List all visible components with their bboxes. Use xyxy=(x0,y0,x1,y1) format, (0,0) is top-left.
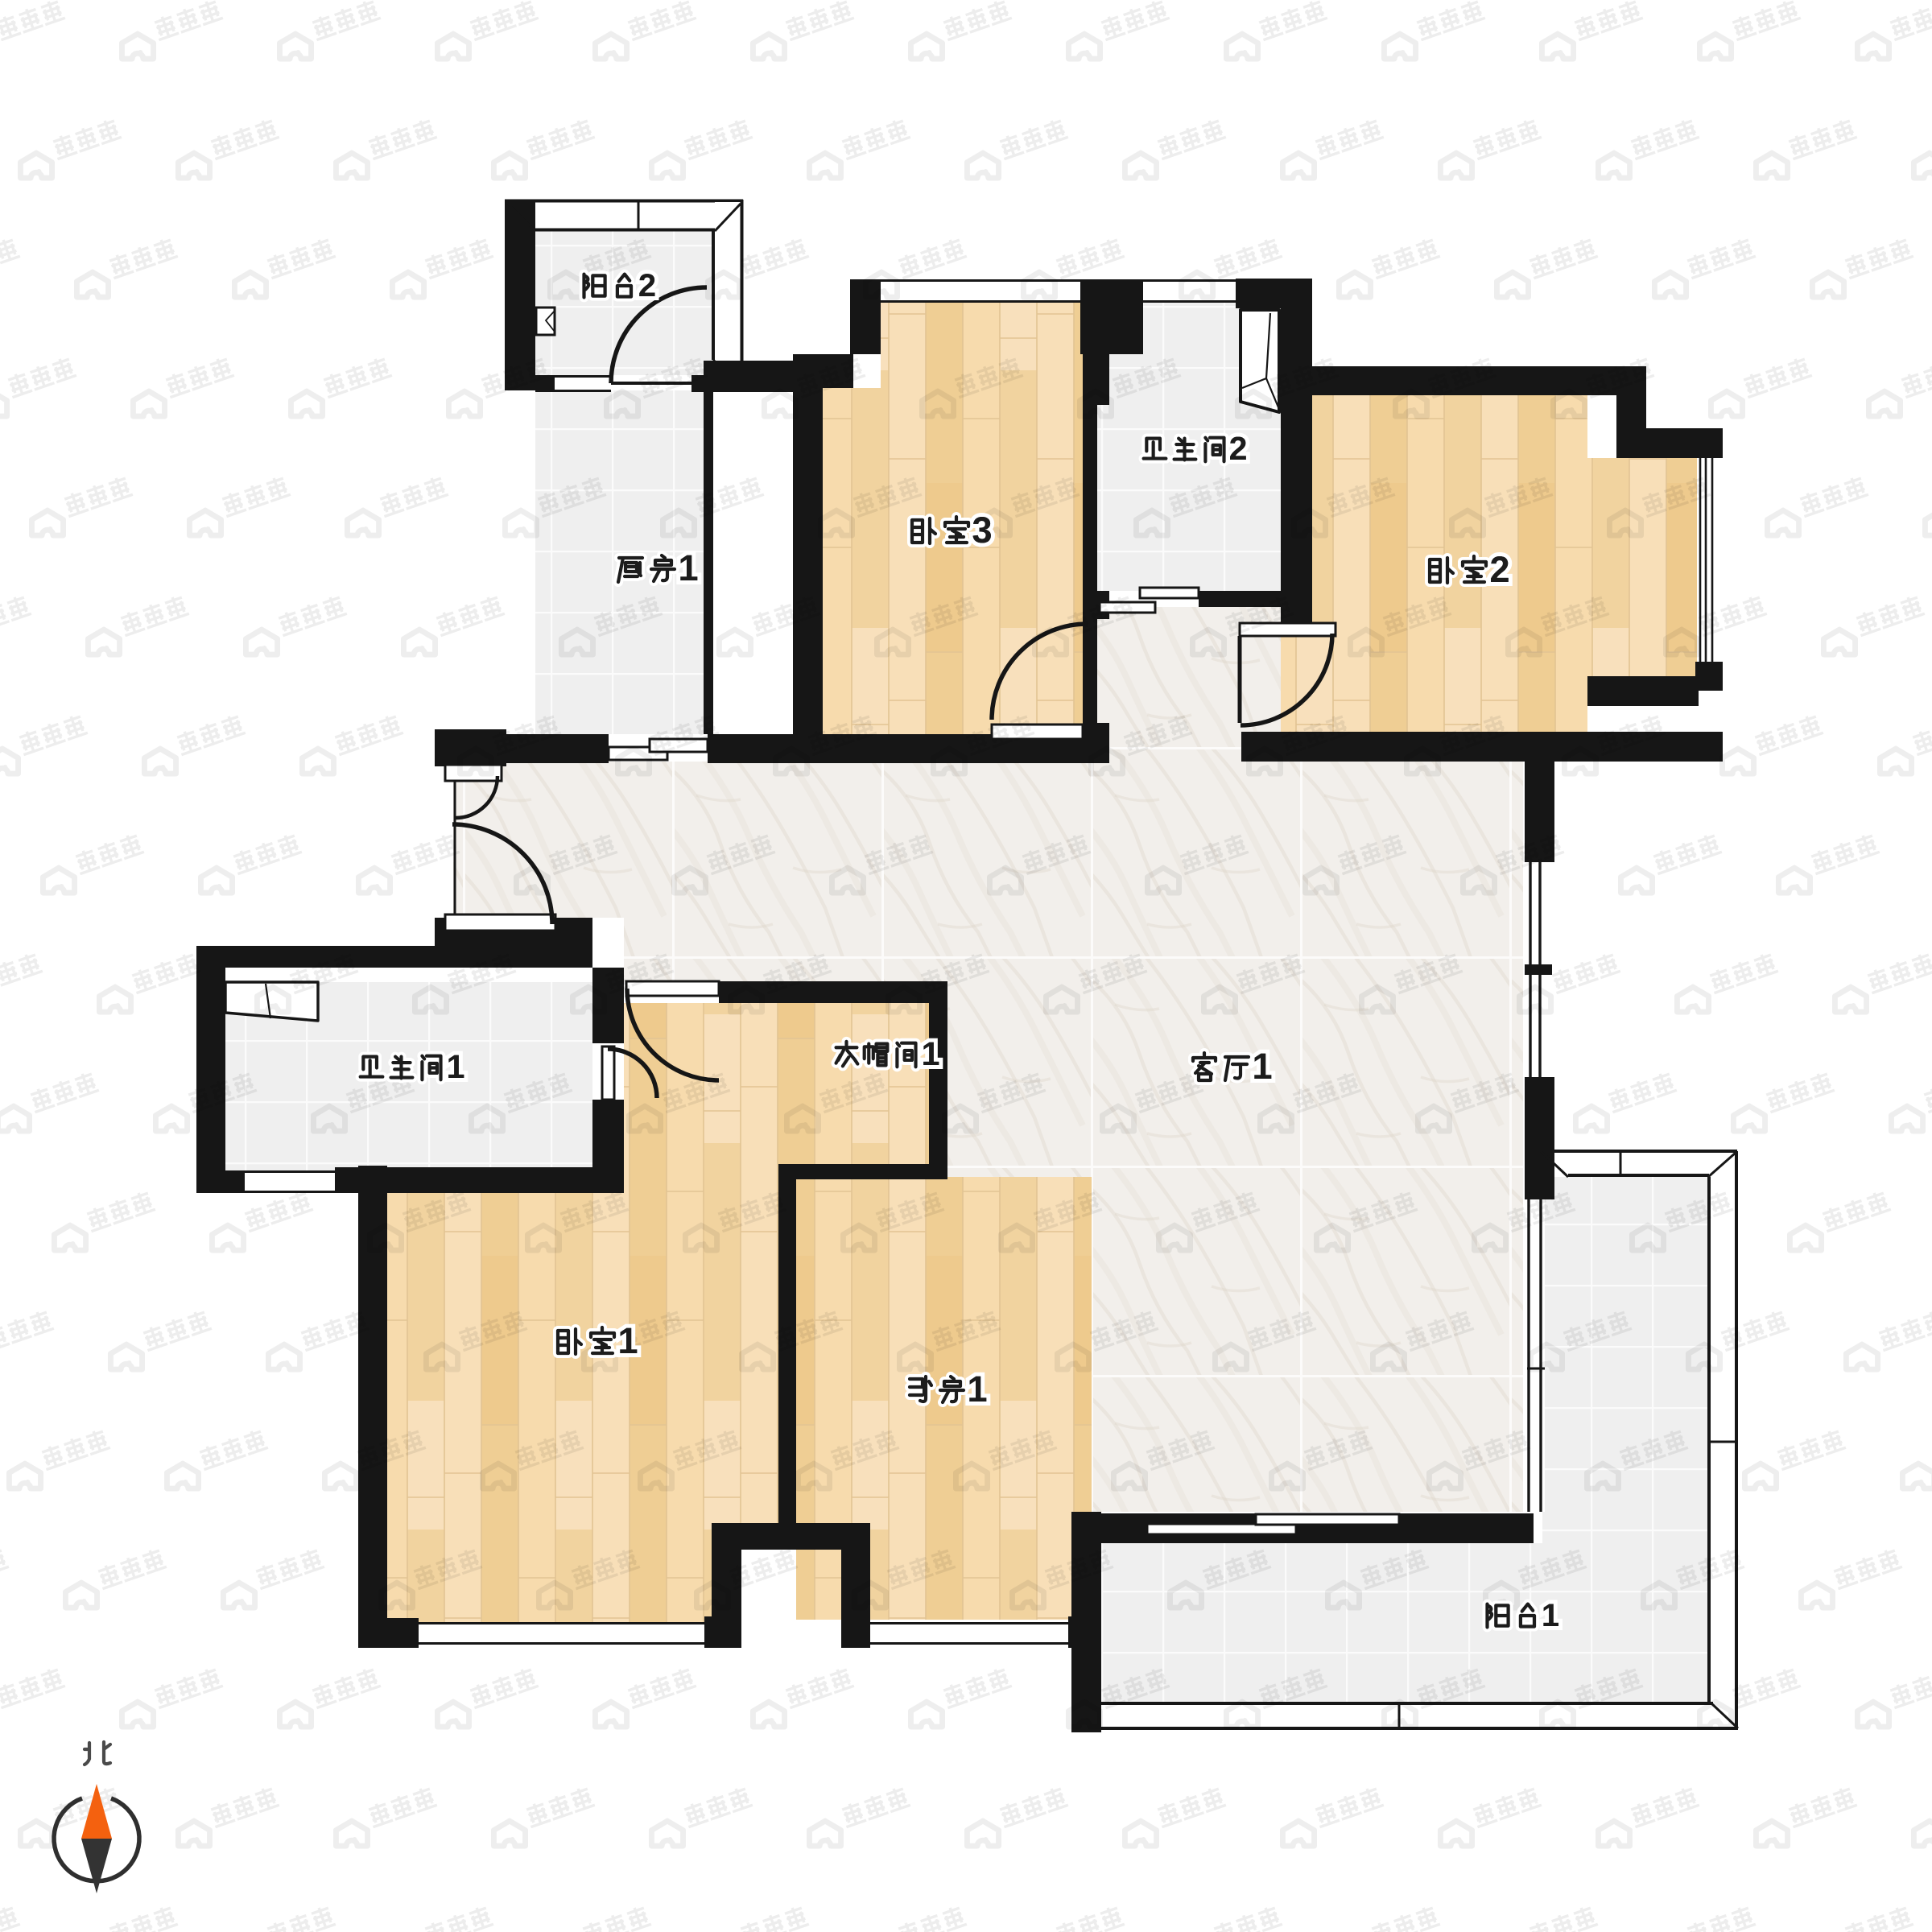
svg-text:1: 1 xyxy=(447,1048,465,1085)
svg-text:1: 1 xyxy=(678,547,698,588)
svg-text:2: 2 xyxy=(1229,430,1248,467)
svg-text:2: 2 xyxy=(1489,549,1509,590)
svg-text:1: 1 xyxy=(967,1368,987,1410)
svg-text:1: 1 xyxy=(1542,1598,1559,1633)
svg-text:1: 1 xyxy=(922,1035,940,1072)
svg-text:1: 1 xyxy=(617,1320,638,1361)
svg-text:2: 2 xyxy=(638,268,656,303)
svg-text:1: 1 xyxy=(1252,1046,1272,1087)
svg-text:3: 3 xyxy=(972,510,992,551)
